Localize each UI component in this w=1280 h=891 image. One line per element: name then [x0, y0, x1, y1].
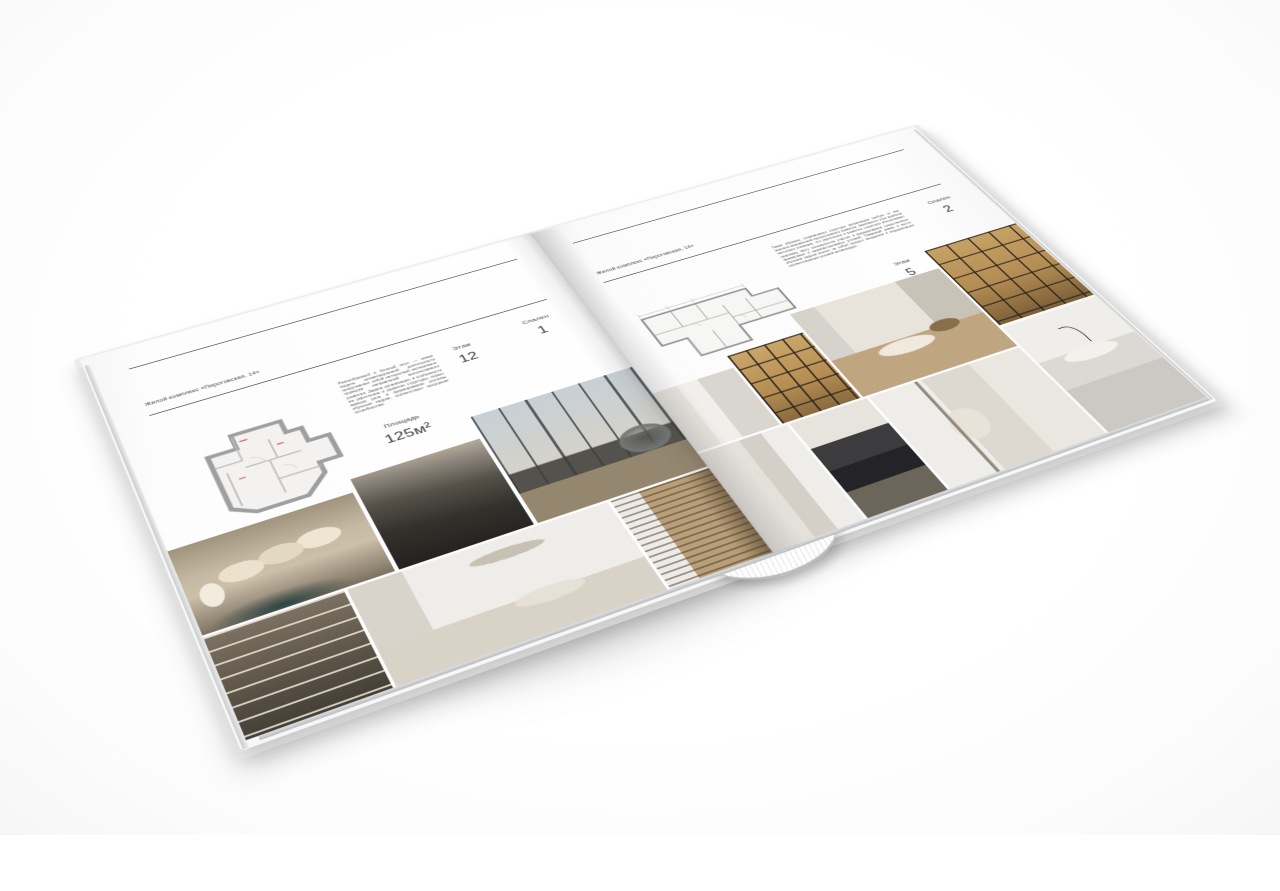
floor-stat: Этаж 12 [431, 336, 502, 372]
bedrooms-stat: Спален 2 [913, 191, 978, 221]
area-stat: Площадь 125м² [360, 406, 453, 452]
description-paragraph: Разнообразный и богатый опыт — новая мод… [337, 354, 451, 415]
black-faucet-icon [1058, 323, 1092, 345]
photo-scene: Жилой комплекс «Пироговская, 14» Разнооб… [0, 0, 1280, 835]
description-paragraph: Таким образом, сложившаяся структура орг… [771, 210, 918, 268]
bedrooms-stat: Спален 1 [506, 309, 576, 344]
